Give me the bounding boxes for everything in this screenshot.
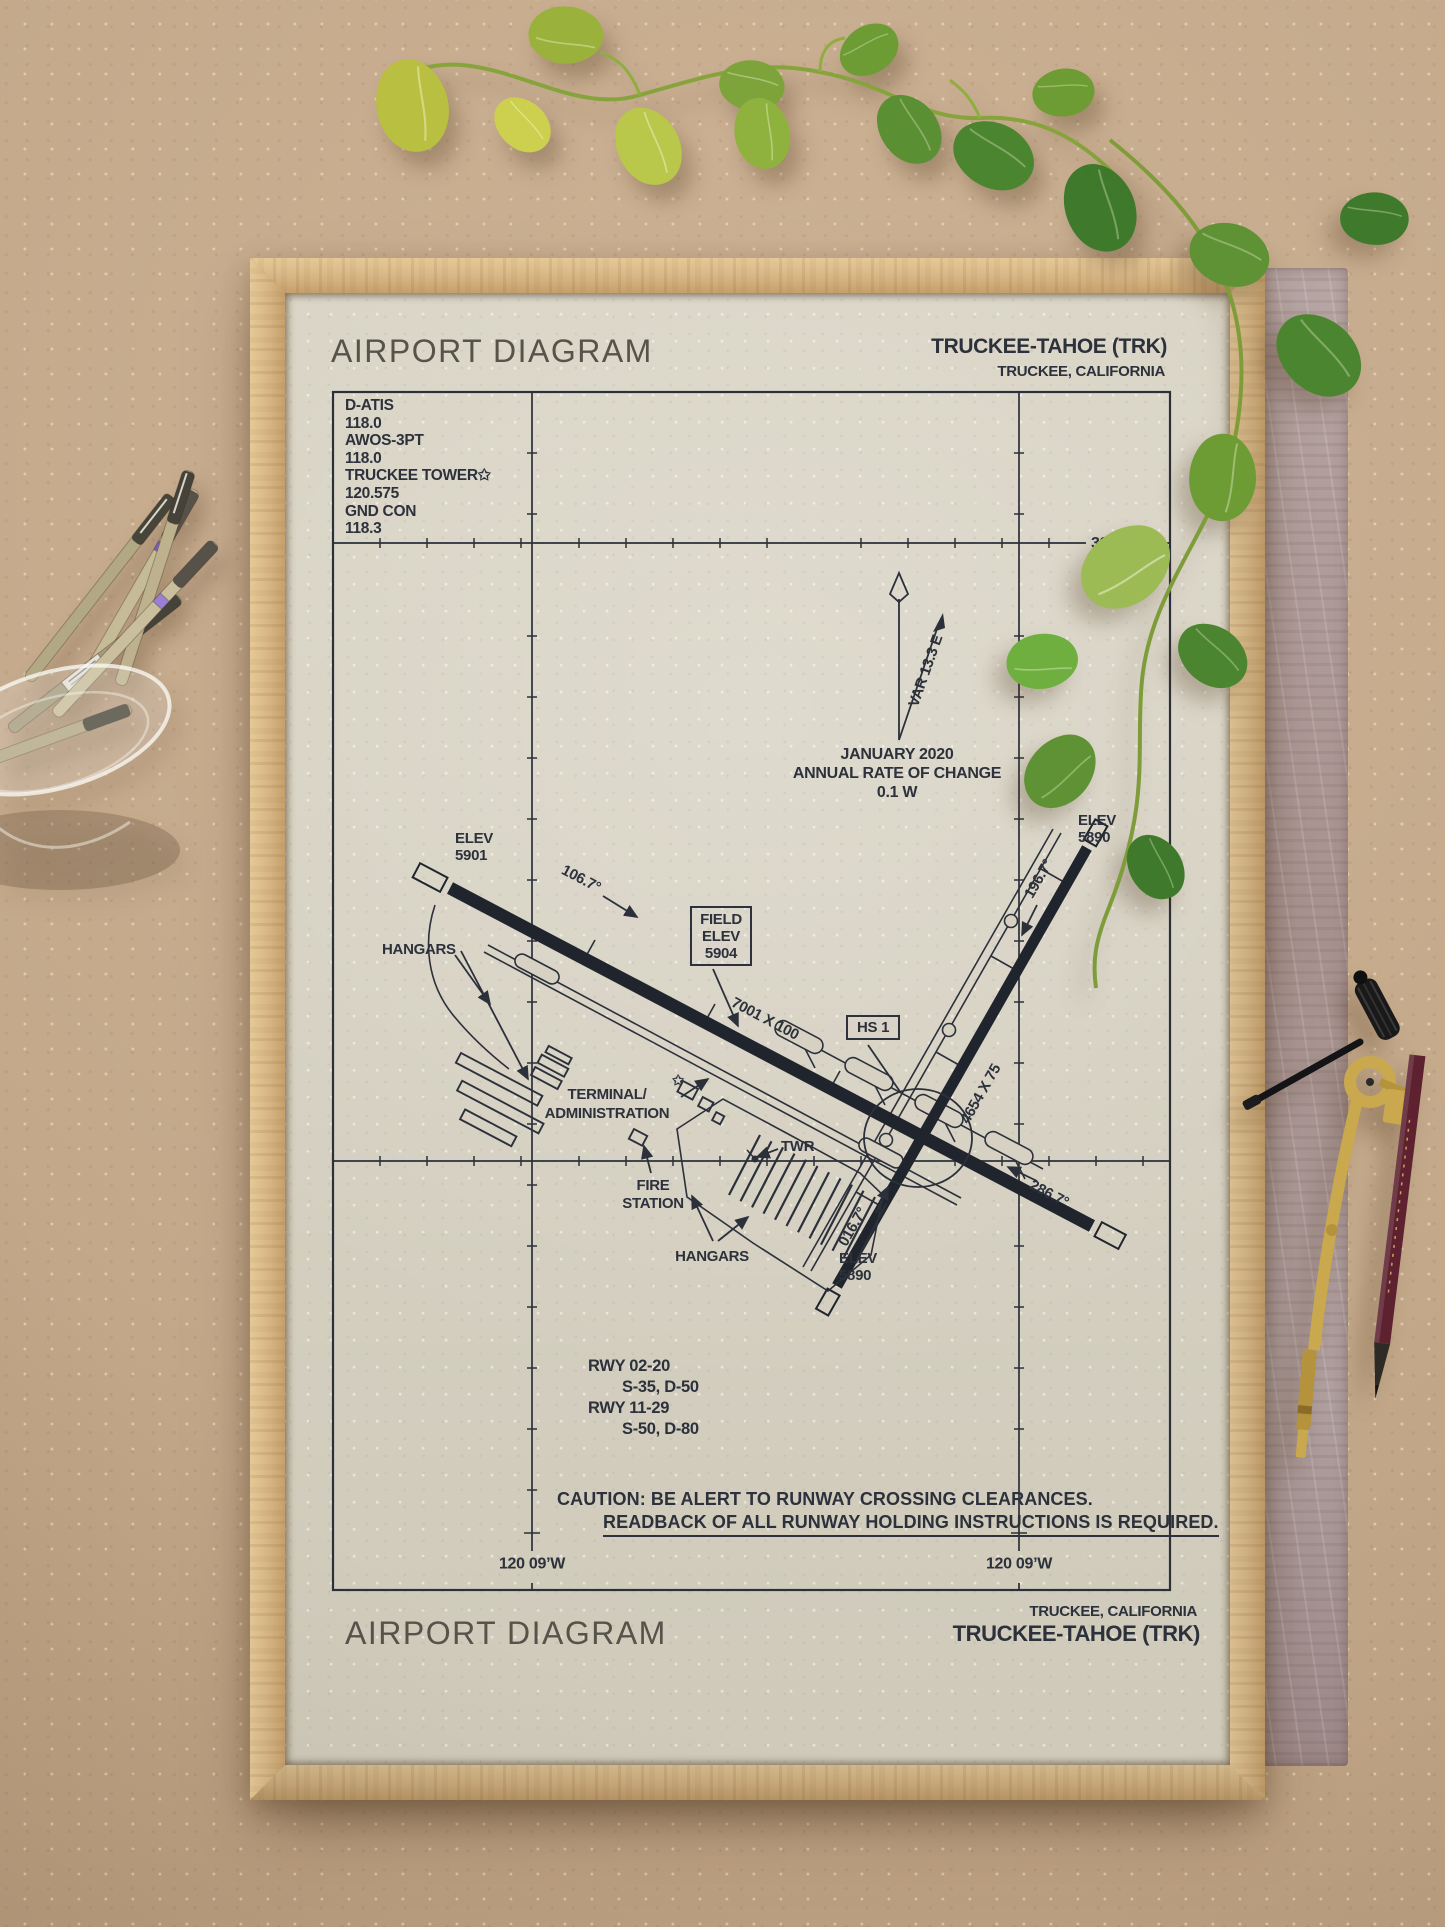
frame-rail-left	[250, 258, 285, 1800]
elev-word: ELEV	[697, 928, 745, 945]
rwy11-elevation: ELEV 5901	[455, 830, 493, 865]
variation-rate-value: 0.1 W	[793, 783, 1001, 802]
variation-date: JANUARY 2020	[793, 745, 1001, 764]
comm-line: TRUCKEE TOWER✩	[345, 467, 490, 485]
elev-value: 5904	[697, 945, 745, 962]
longitude-label-left: 120 09’W	[499, 1556, 565, 1575]
pen-cup	[0, 430, 250, 950]
longitude-label-right: 120 09’W	[986, 1556, 1052, 1575]
rwy02-elevation: ELEV 5890	[839, 1250, 877, 1285]
variation-note: JANUARY 2020 ANNUAL RATE OF CHANGE 0.1 W	[793, 745, 1001, 802]
footer-location: TRUCKEE, CALIFORNIA	[1029, 1603, 1197, 1620]
compass-knob	[1347, 966, 1403, 1043]
hotspot-label: HS 1	[846, 1015, 900, 1040]
comm-line: 118.0	[345, 450, 490, 468]
comm-line: 120.575	[345, 485, 490, 503]
footer-airport: TRUCKEE-TAHOE (TRK)	[953, 1621, 1200, 1647]
comm-frequencies-box: D-ATIS 118.0 AWOS-3PT 118.0 TRUCKEE TOWE…	[345, 397, 490, 538]
caution-line-1: CAUTION: BE ALERT TO RUNWAY CROSSING CLE…	[557, 1489, 1093, 1510]
field-elevation-box: FIELD ELEV 5904	[690, 906, 752, 966]
runway-data-block: RWY 02-20 S-35, D-50 RWY 11-29 S-50, D-8…	[588, 1356, 699, 1440]
comm-line: 118.3	[345, 520, 490, 538]
comm-line: AWOS-3PT	[345, 432, 490, 450]
beacon-icon: ✩	[672, 1072, 683, 1088]
runway-data-line: RWY 11-29	[588, 1398, 699, 1419]
footer-title: AIRPORT DIAGRAM	[345, 1615, 667, 1652]
terminal-line: ADMINISTRATION	[545, 1104, 670, 1123]
frame-rail-bottom	[250, 1765, 1265, 1800]
page-title: AIRPORT DIAGRAM	[331, 333, 653, 370]
tower-label: TWR	[781, 1138, 814, 1155]
runway-data-line: S-50, D-80	[588, 1419, 699, 1440]
drafting-compass	[1230, 930, 1445, 1530]
elev-value: 5890	[839, 1267, 877, 1284]
runway-data-line: S-35, D-50	[588, 1377, 699, 1398]
compass-legs	[1294, 1082, 1418, 1458]
caution-line-2: READBACK OF ALL RUNWAY HOLDING INSTRUCTI…	[603, 1512, 1219, 1537]
elev-word: ELEV	[839, 1250, 877, 1267]
elev-word: ELEV	[455, 830, 493, 847]
cup-shadow	[0, 810, 180, 890]
fire-line: STATION	[622, 1195, 684, 1213]
terminal-line: TERMINAL/	[545, 1085, 670, 1104]
plant-vine-right	[1000, 110, 1445, 1030]
field-word: FIELD	[697, 911, 745, 928]
vine-leaves	[1003, 182, 1416, 907]
comm-line: GND CON	[345, 503, 490, 521]
comm-line: 118.0	[345, 415, 490, 433]
comm-line: D-ATIS	[345, 397, 490, 415]
runway-data-line: RWY 02-20	[588, 1356, 699, 1377]
elev-value: 5901	[455, 847, 493, 864]
hangars-s-label: HANGARS	[675, 1248, 749, 1265]
runup-pads	[513, 915, 1036, 1171]
compass-beam	[1242, 1042, 1360, 1111]
hangars-nw-label: HANGARS	[382, 941, 456, 958]
variation-rate: ANNUAL RATE OF CHANGE	[793, 764, 1001, 783]
fire-line: FIRE	[622, 1177, 684, 1195]
fire-station-label: FIRE STATION	[622, 1177, 684, 1213]
terminal-label: TERMINAL/ ADMINISTRATION	[545, 1085, 670, 1123]
